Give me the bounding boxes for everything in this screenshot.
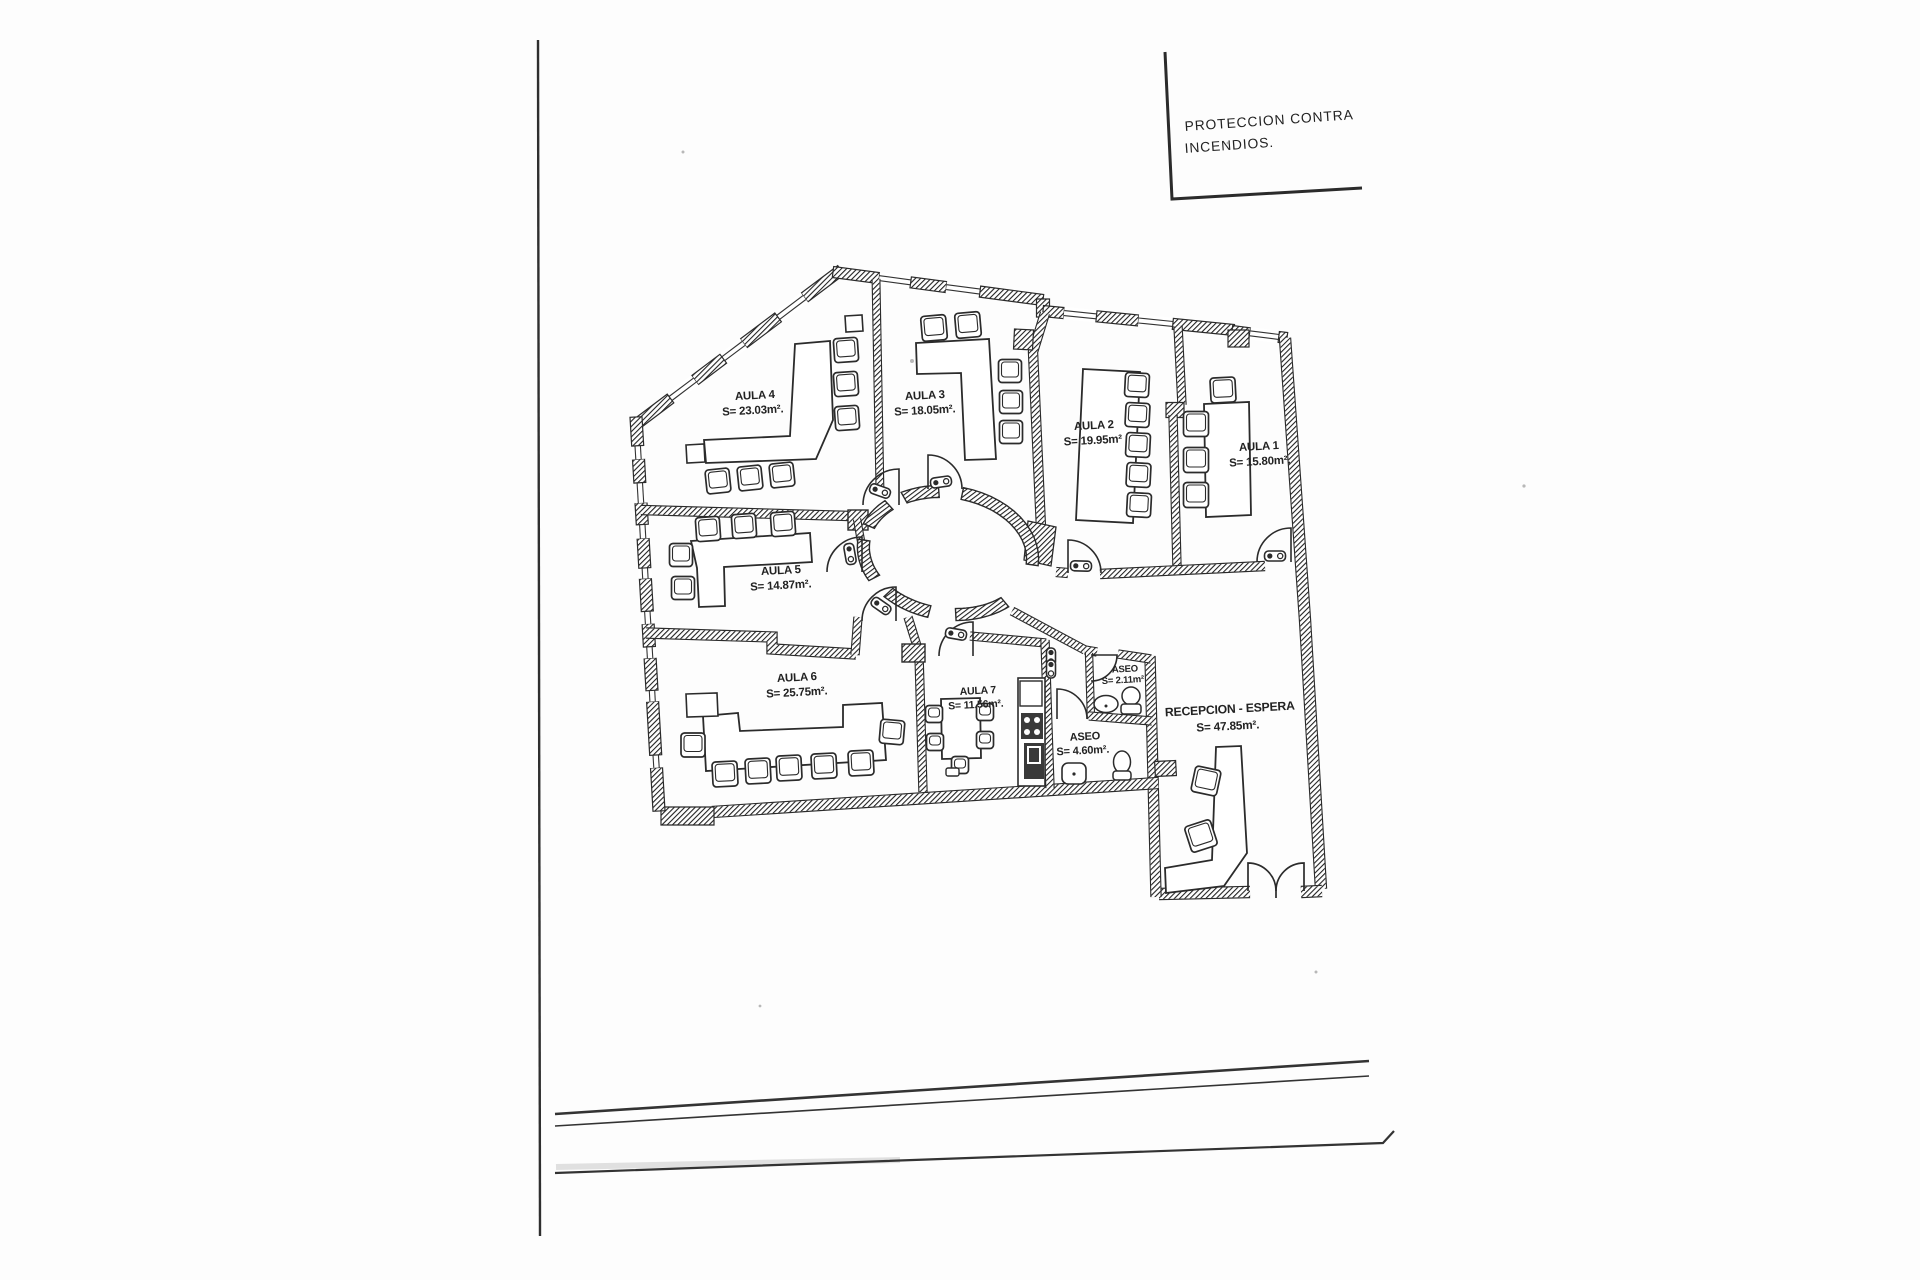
svg-text:AULA 4: AULA 4	[735, 389, 776, 403]
svg-text:ASEO: ASEO	[1069, 730, 1101, 744]
svg-text:AULA 2: AULA 2	[1074, 419, 1114, 433]
svg-text:AULA 1: AULA 1	[1239, 440, 1280, 454]
svg-text:AULA 7: AULA 7	[959, 684, 996, 698]
svg-text:AULA 6: AULA 6	[777, 671, 817, 685]
svg-text:S= 2.11m²: S= 2.11m²	[1101, 674, 1144, 687]
svg-text:AULA 3: AULA 3	[905, 389, 945, 403]
svg-text:AULA 5: AULA 5	[761, 564, 802, 578]
